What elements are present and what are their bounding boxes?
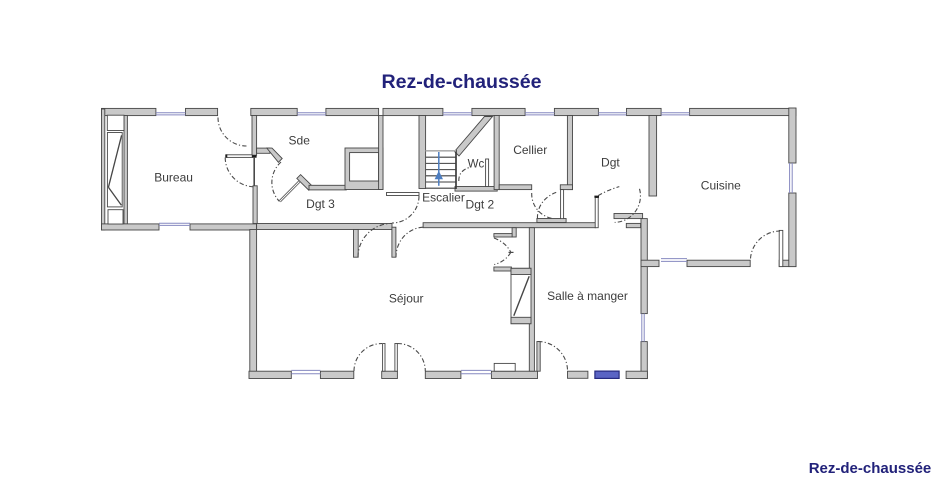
svg-text:Dgt 2: Dgt 2 (466, 197, 495, 211)
svg-text:Dgt 3: Dgt 3 (306, 197, 335, 211)
svg-text:Bureau: Bureau (154, 171, 193, 185)
svg-text:Wc: Wc (468, 159, 485, 171)
svg-text:Salle à manger: Salle à manger (547, 289, 628, 303)
svg-text:Rez-de-chaussée: Rez-de-chaussée (809, 460, 932, 477)
svg-text:Cellier: Cellier (513, 143, 547, 157)
svg-text:Sde: Sde (289, 133, 311, 147)
svg-text:Séjour: Séjour (389, 291, 424, 305)
svg-text:Rez-de-chaussée: Rez-de-chaussée (381, 71, 541, 93)
svg-text:Dgt: Dgt (601, 155, 620, 169)
svg-text:Cuisine: Cuisine (701, 178, 741, 192)
svg-text:Escalier: Escalier (422, 191, 465, 205)
